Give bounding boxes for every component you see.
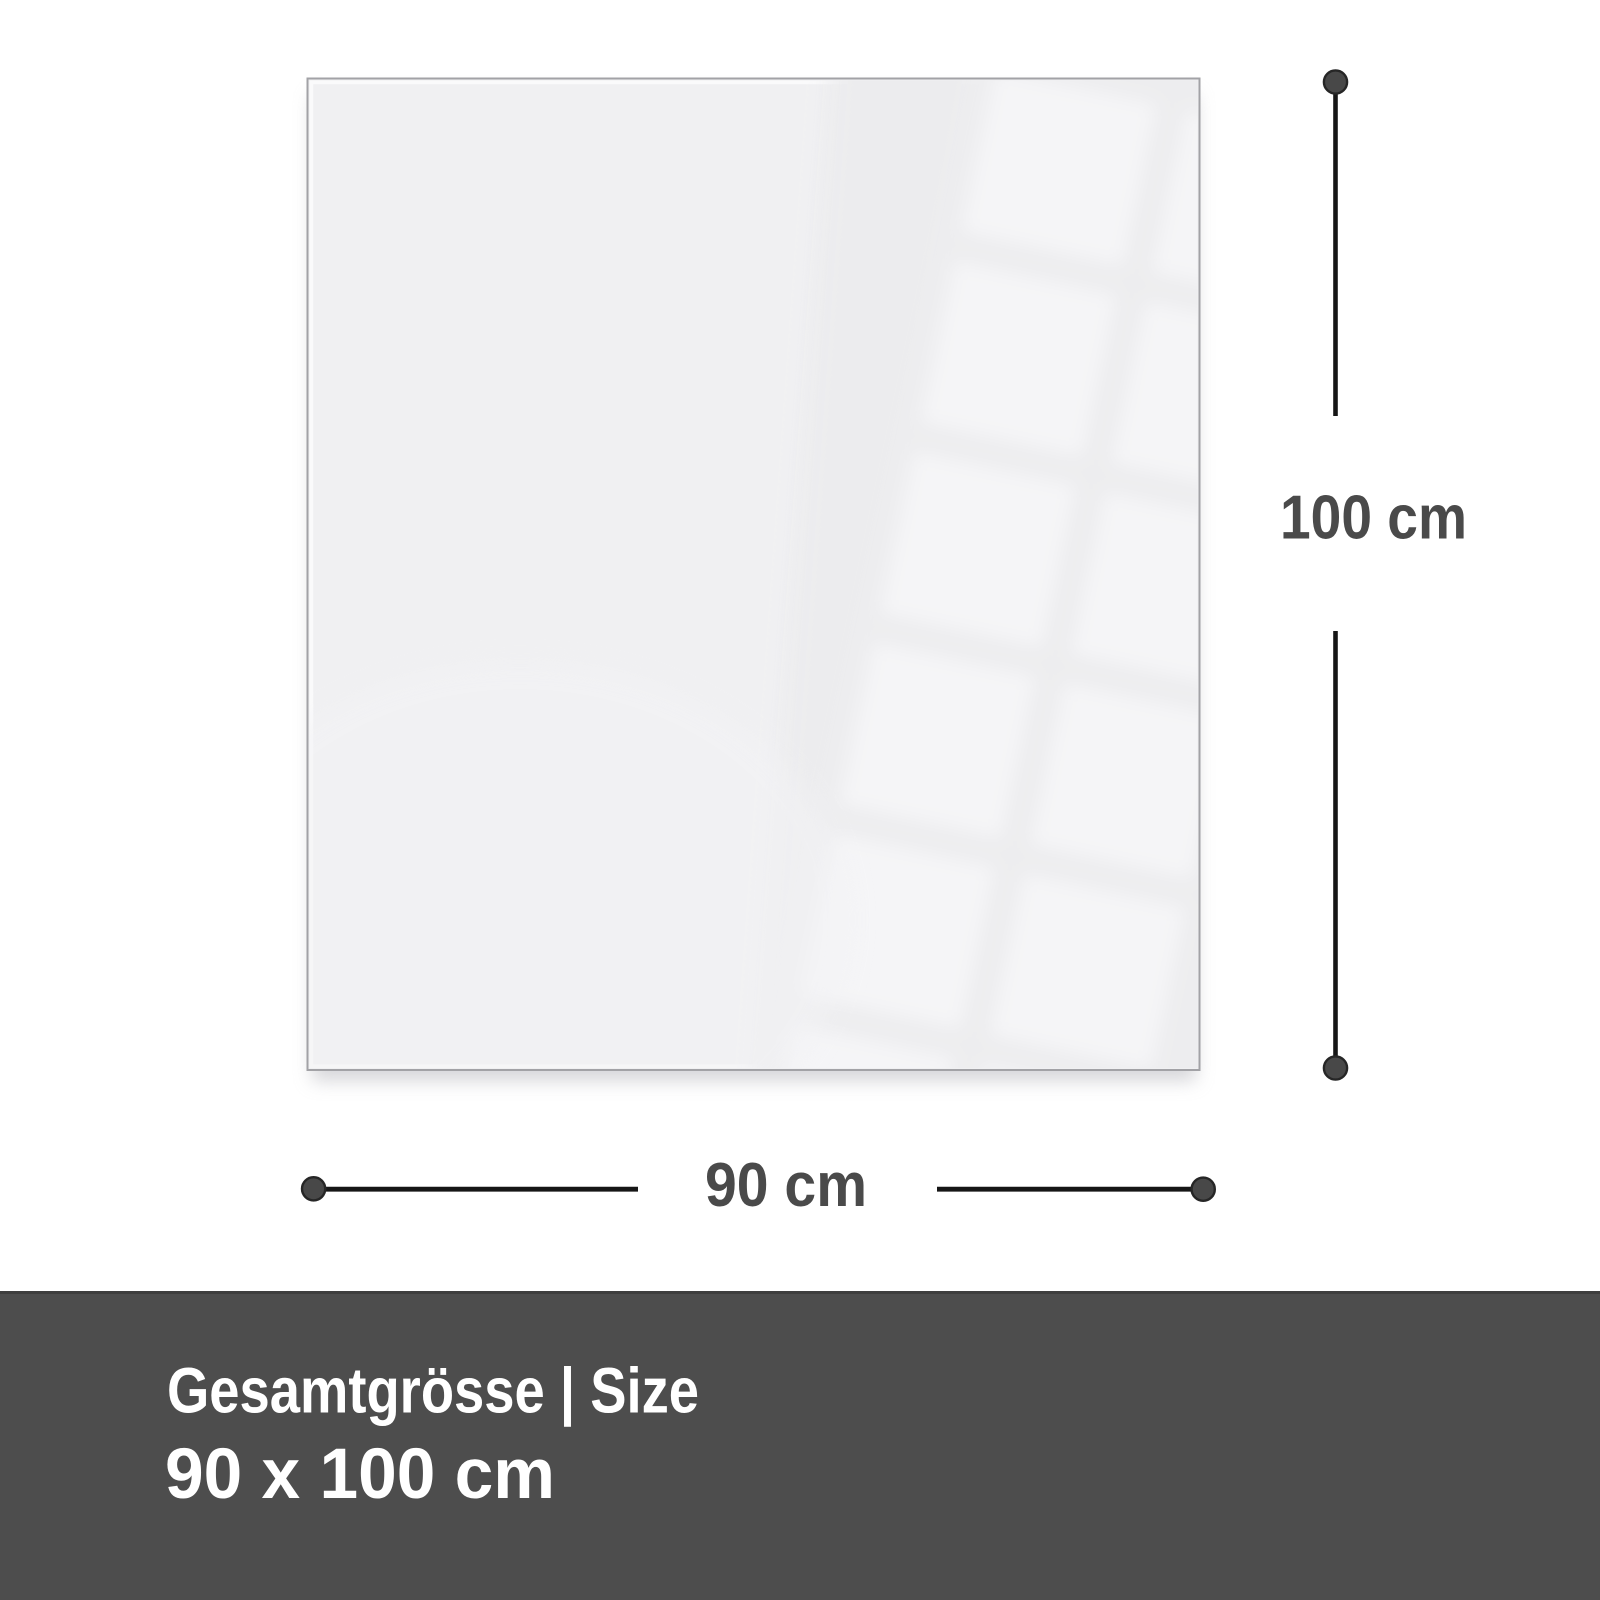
- svg-text:Gesamtgrösse | Size: Gesamtgrösse | Size: [167, 1355, 699, 1428]
- svg-text:90 x 100 cm: 90 x 100 cm: [165, 1435, 555, 1514]
- svg-text:90 cm: 90 cm: [705, 1151, 867, 1220]
- svg-text:100 cm: 100 cm: [1280, 484, 1467, 553]
